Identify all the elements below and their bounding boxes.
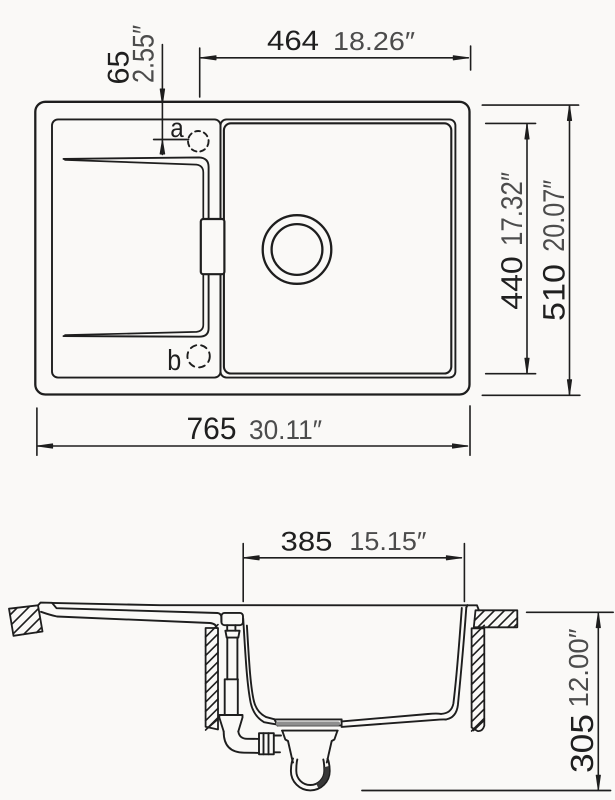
svg-text:440: 440 <box>496 256 529 310</box>
svg-text:a: a <box>170 113 184 143</box>
svg-text:30.11″: 30.11″ <box>249 415 322 445</box>
svg-text:305: 305 <box>564 714 600 773</box>
svg-text:b: b <box>167 345 181 377</box>
svg-text:2.55″: 2.55″ <box>128 25 161 83</box>
svg-text:20.07″: 20.07″ <box>538 179 571 251</box>
svg-text:17.32″: 17.32″ <box>496 172 529 246</box>
svg-text:12.00″: 12.00″ <box>563 628 594 707</box>
svg-text:15.15″: 15.15″ <box>349 526 426 556</box>
svg-text:464: 464 <box>267 25 319 56</box>
svg-text:510: 510 <box>537 264 572 321</box>
svg-text:765: 765 <box>187 411 237 446</box>
svg-text:18.26″: 18.26″ <box>333 26 415 56</box>
svg-text:385: 385 <box>281 526 333 556</box>
